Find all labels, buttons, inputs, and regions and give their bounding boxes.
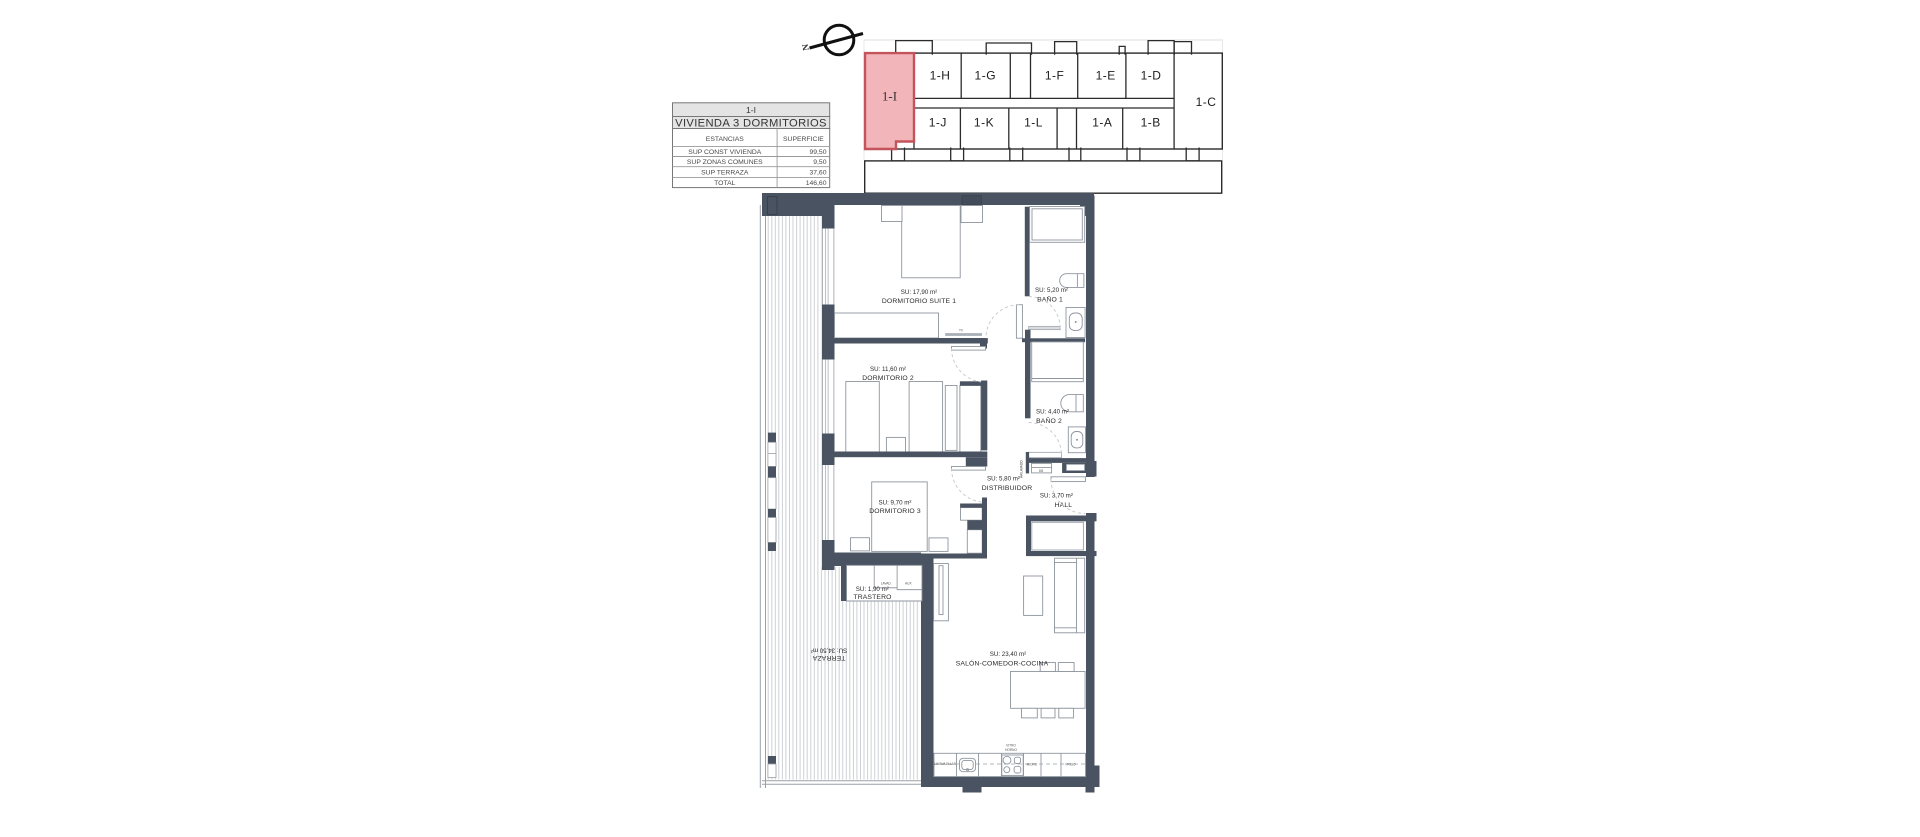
svg-text:DORMITORIO SUITE 1: DORMITORIO SUITE 1: [882, 298, 956, 305]
svg-text:TOTAL: TOTAL: [714, 180, 735, 187]
svg-text:SU: 23,40 m²: SU: 23,40 m²: [990, 651, 1026, 658]
svg-text:1-J: 1-J: [929, 116, 947, 130]
svg-text:DORMITORIO 3: DORMITORIO 3: [869, 508, 921, 515]
svg-text:FRIGO: FRIGO: [1065, 763, 1076, 767]
svg-text:1-C: 1-C: [1196, 95, 1217, 109]
svg-text:37,60: 37,60: [809, 170, 826, 177]
svg-text:SU: 5,80 m²: SU: 5,80 m²: [987, 475, 1020, 482]
svg-text:1-A: 1-A: [1092, 116, 1112, 130]
svg-text:1-B: 1-B: [1141, 116, 1161, 130]
svg-text:1-I: 1-I: [882, 89, 897, 104]
svg-text:SUP CONST VIVIENDA: SUP CONST VIVIENDA: [688, 149, 761, 156]
svg-text:9,50: 9,50: [813, 159, 826, 166]
svg-text:DISTRIBUIDOR: DISTRIBUIDOR: [982, 485, 1033, 492]
svg-text:ESTANCIAS: ESTANCIAS: [706, 136, 744, 143]
svg-text:146,60: 146,60: [806, 180, 827, 187]
svg-text:SU: 17,90 m²: SU: 17,90 m²: [901, 289, 937, 296]
svg-text:SU: 1,90 m²: SU: 1,90 m²: [856, 586, 889, 593]
svg-text:SU: 4,40 m²: SU: 4,40 m²: [1036, 408, 1069, 415]
svg-text:SALÓN-COMEDOR-COCINA: SALÓN-COMEDOR-COCINA: [956, 659, 1049, 668]
svg-text:99,50: 99,50: [809, 149, 826, 156]
svg-text:1-I: 1-I: [746, 105, 756, 115]
svg-text:SUP ZONAS COMUNES: SUP ZONAS COMUNES: [687, 159, 763, 166]
svg-text:SU: 9,70 m²: SU: 9,70 m²: [878, 500, 911, 507]
svg-text:1-G: 1-G: [975, 69, 997, 83]
svg-text:1-F: 1-F: [1045, 69, 1065, 83]
svg-text:LAVAVAJILLAS: LAVAVAJILLAS: [934, 762, 956, 766]
svg-text:SUPERFICIE: SUPERFICIE: [783, 136, 824, 143]
svg-text:AA/LAVADO: AA/LAVADO: [1019, 460, 1023, 478]
svg-text:TRASTERO: TRASTERO: [853, 594, 891, 601]
svg-text:BAÑO 2: BAÑO 2: [1036, 416, 1062, 425]
svg-text:SU: 11,60 m²: SU: 11,60 m²: [870, 366, 906, 373]
svg-text:SUP TERRAZA: SUP TERRAZA: [701, 170, 749, 177]
svg-text:AUX: AUX: [905, 581, 912, 585]
svg-text:SU: 34,50 m²: SU: 34,50 m²: [811, 646, 847, 653]
svg-text:1-D: 1-D: [1141, 69, 1162, 83]
svg-text:SU: 5,20 m²: SU: 5,20 m²: [1035, 287, 1068, 294]
svg-text:1-K: 1-K: [974, 116, 994, 130]
svg-text:1-L: 1-L: [1024, 116, 1043, 130]
svg-text:DB: DB: [1039, 469, 1043, 473]
svg-text:1-E: 1-E: [1096, 69, 1116, 83]
svg-text:HORNO: HORNO: [1005, 748, 1017, 752]
svg-text:VIVIENDA 3 DORMITORIOS: VIVIENDA 3 DORMITORIOS: [675, 117, 827, 129]
svg-text:1-H: 1-H: [930, 69, 951, 83]
svg-text:TERRAZA: TERRAZA: [812, 654, 845, 661]
svg-text:MICRO: MICRO: [1027, 762, 1038, 766]
